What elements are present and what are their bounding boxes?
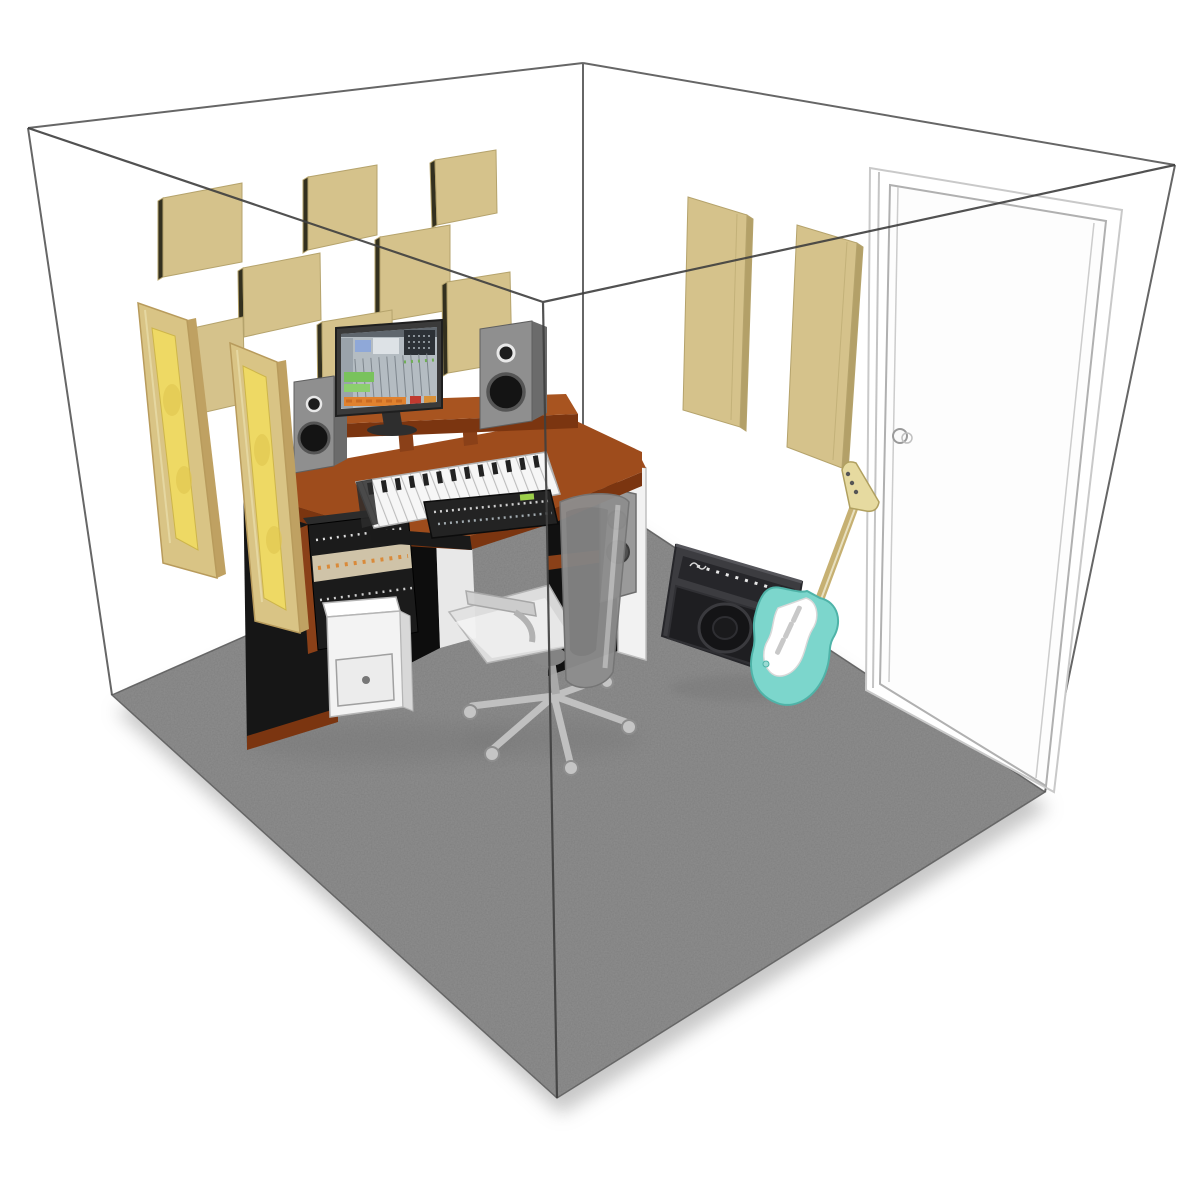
tweeter [498, 345, 514, 361]
acoustic-panel [238, 253, 321, 340]
scene-canvas [0, 0, 1200, 1200]
door-panel [880, 185, 1106, 786]
left-corner-edge [28, 128, 112, 695]
right-wall-panel [683, 197, 753, 431]
ceiling-edge-left [28, 63, 583, 128]
door-knob [893, 429, 907, 443]
guitar-neck [818, 502, 856, 604]
ceiling-edge-right [583, 63, 1175, 165]
woofer [299, 423, 329, 453]
drawer-knob [362, 676, 370, 684]
daw-screen [338, 324, 440, 412]
studio-room-illustration [0, 0, 1200, 1200]
acoustic-panel [430, 150, 497, 228]
right-wall-panel [787, 225, 863, 472]
mixer-display [520, 493, 534, 500]
door [866, 168, 1122, 792]
white-drawer-unit [323, 597, 413, 717]
guitar-jack [763, 661, 769, 667]
guitar-strings [820, 503, 857, 602]
speaker-right [480, 321, 547, 429]
acoustic-panel [375, 225, 450, 325]
woofer [488, 374, 524, 410]
monitor-base [367, 424, 417, 436]
tweeter [307, 397, 321, 411]
acoustic-panel [303, 165, 377, 253]
acoustic-panel [158, 183, 242, 280]
